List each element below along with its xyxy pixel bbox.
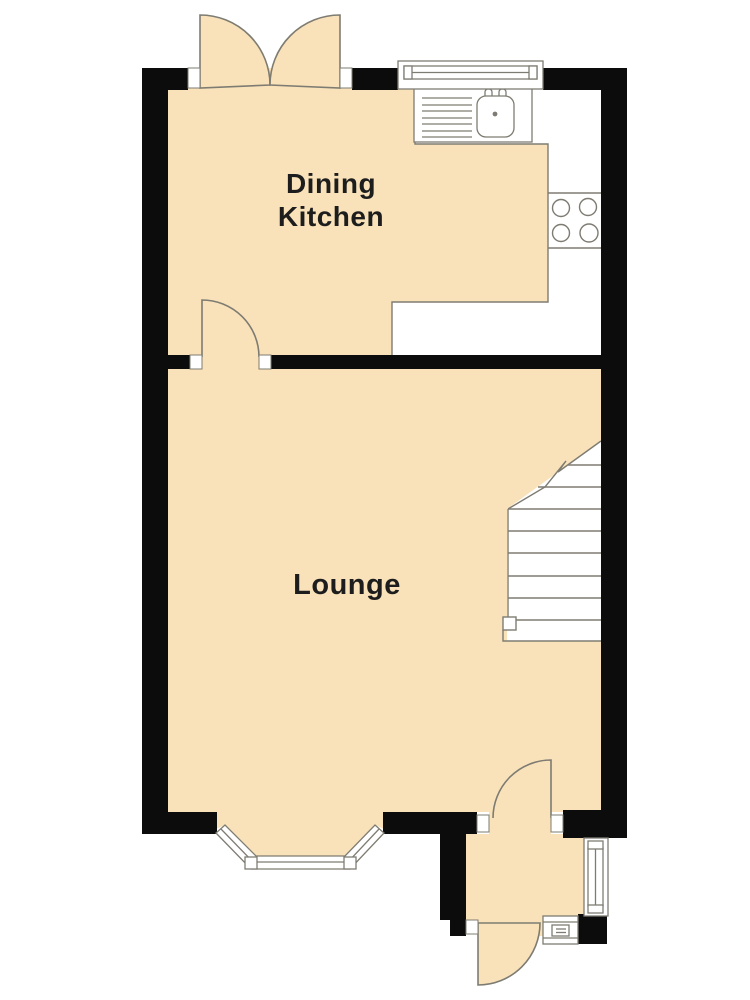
porch-floor [466,834,584,920]
hob-4-ring [548,193,601,248]
divider-wall-right [271,355,627,369]
plughole [493,112,498,117]
dining-kitchen-label: Dining Kitchen [256,167,406,233]
floor-plan-drawing [0,0,750,1000]
lounge-label: Lounge [277,569,417,601]
left-wall [142,68,168,834]
bay-mullion [245,857,257,869]
bottom-wall-left [142,812,217,834]
meter-box [543,916,578,944]
divider-wall-left [142,355,190,369]
top-wall-mid [352,68,398,90]
porch-window [584,838,608,916]
bottom-wall-corner [563,810,627,838]
porch-corner-wall [578,914,607,944]
bay-mullion [344,857,356,869]
internal-door-opening [202,355,259,369]
sink-drainer-unit [414,88,532,142]
hall-door-opening [489,812,551,834]
sink-bowl [477,96,514,137]
top-wall-left [142,68,188,90]
bottom-wall-mid [383,812,477,834]
floor-plan-page: Dining Kitchen Lounge [0,0,750,1000]
front-door [478,923,540,985]
newel-post [503,617,516,630]
double-patio-door [200,15,340,88]
right-wall [601,68,627,838]
porch-left-wall [440,834,466,920]
kitchen-window [398,61,543,89]
porch-left-wall-foot [450,918,466,936]
